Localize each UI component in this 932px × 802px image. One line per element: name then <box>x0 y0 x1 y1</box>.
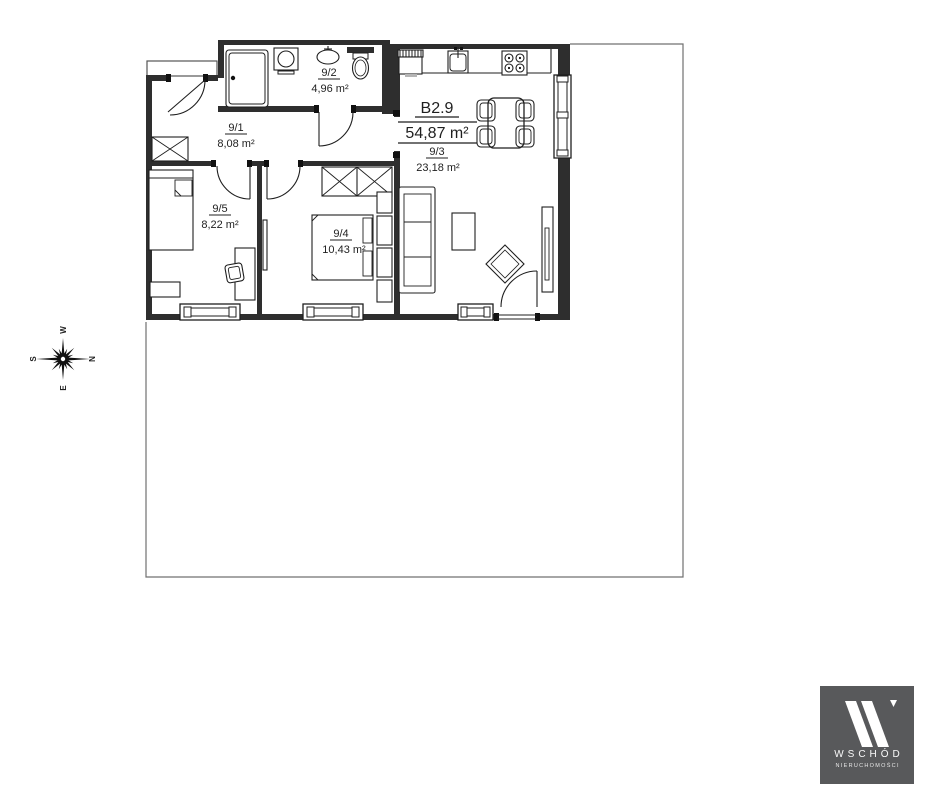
living-furniture <box>399 187 553 293</box>
compass-north: N <box>88 356 97 362</box>
hallway-wardrobe <box>152 137 188 161</box>
logo-name: WSCHÓD <box>830 749 904 760</box>
compass-south: S <box>29 356 38 362</box>
floor-plan: B2.9 54,87 m² 9/3 23,18 m² 9/2 4,96 m² 9… <box>0 0 932 797</box>
room-area: 23,18 m² <box>416 162 460 174</box>
entrance-stub <box>147 61 217 76</box>
room4-door <box>267 166 300 199</box>
logo-subtitle: NIERUCHOMOŚCI <box>834 763 900 769</box>
upper-cabinet <box>398 50 423 57</box>
shower <box>226 50 268 107</box>
room-label: 9/5 <box>212 203 227 215</box>
logo-w-icon <box>837 698 897 748</box>
tv-unit <box>542 207 553 292</box>
dining-set <box>477 98 534 148</box>
bathroom-fixtures <box>226 46 374 107</box>
washbasin <box>317 46 339 64</box>
bathroom-door <box>319 112 353 146</box>
wall-panel <box>263 220 267 270</box>
dining-chair <box>516 100 534 121</box>
dining-chair <box>477 100 495 121</box>
room-label: 9/3 <box>429 146 444 158</box>
room-area: 10,43 m² <box>322 244 366 256</box>
fridge <box>399 57 422 77</box>
unit-code: B2.9 <box>421 100 454 117</box>
compass-east: E <box>59 385 68 391</box>
window <box>180 304 240 320</box>
room-label: 9/4 <box>333 228 348 240</box>
room5-door <box>217 166 250 199</box>
room-area: 8,08 m² <box>217 138 255 150</box>
room-area: 4,96 m² <box>311 83 349 95</box>
closet-column <box>377 192 392 302</box>
unit-area: 54,87 m² <box>405 125 469 142</box>
bedroom-furniture <box>263 167 392 302</box>
desk-chair <box>225 263 245 284</box>
stove <box>502 51 527 75</box>
room-label: 9/2 <box>321 67 336 79</box>
sofa <box>399 187 435 293</box>
entrance-door <box>168 80 205 115</box>
window-side <box>554 75 571 158</box>
dining-chair <box>477 126 495 147</box>
kitchen <box>398 47 551 77</box>
washing-machine <box>274 48 298 74</box>
room-area: 8,22 m² <box>201 219 239 231</box>
coffee-table <box>452 213 475 250</box>
armchair <box>486 245 524 283</box>
shelf <box>150 282 180 297</box>
compass-rose: W S N E <box>29 326 97 391</box>
room-label: 9/1 <box>228 122 243 134</box>
balcony-sill <box>497 315 537 319</box>
toilet <box>347 47 374 79</box>
window <box>458 304 493 320</box>
window <box>303 304 363 320</box>
compass-west: W <box>59 326 68 334</box>
single-bed <box>149 170 193 250</box>
kitchen-sink <box>448 47 468 73</box>
dining-chair <box>516 126 534 147</box>
agency-logo: WSCHÓD NIERUCHOMOŚCI <box>820 686 914 784</box>
